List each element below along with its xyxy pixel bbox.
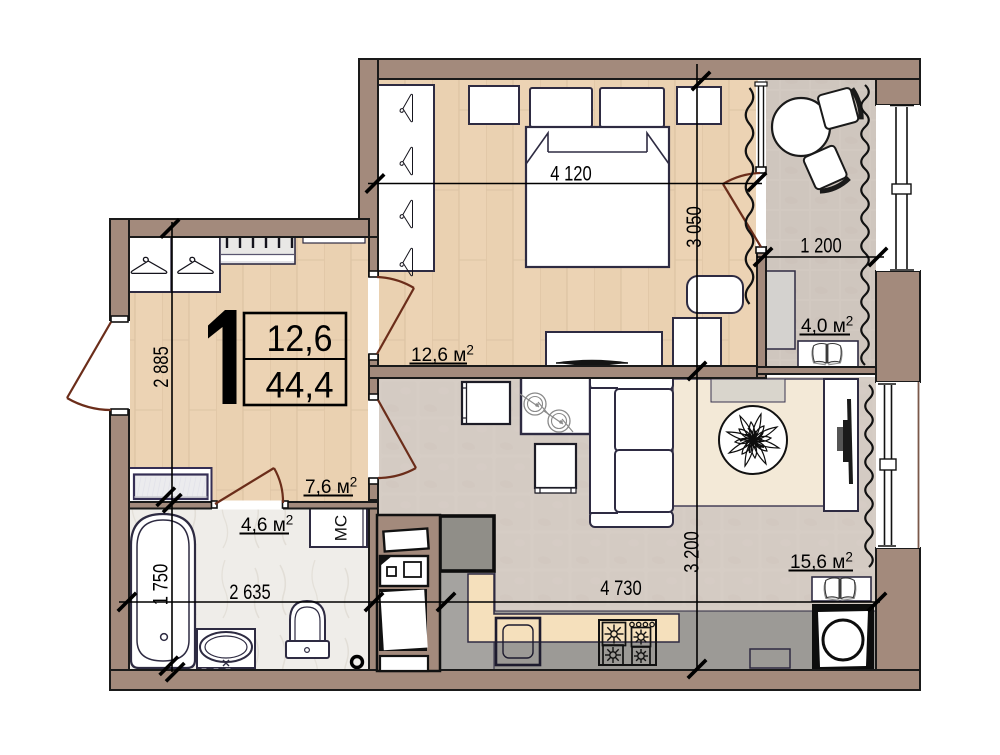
svg-text:7,6 м2: 7,6 м2 [305,475,357,499]
svg-text:МС: МС [332,515,351,541]
svg-text:4 120: 4 120 [550,163,592,186]
svg-text:15,6 м2: 15,6 м2 [790,550,853,574]
svg-text:2 635: 2 635 [229,581,271,604]
svg-text:1 200: 1 200 [800,235,842,258]
svg-text:12,6 м2: 12,6 м2 [411,343,474,367]
svg-text:2 885: 2 885 [150,346,173,388]
svg-text:4,6 м2: 4,6 м2 [241,513,293,537]
svg-text:1 750: 1 750 [150,564,173,606]
svg-text:3 200: 3 200 [681,531,704,573]
svg-text:3 050: 3 050 [683,206,706,248]
svg-text:4,0 м2: 4,0 м2 [801,314,853,338]
svg-text:4 730: 4 730 [600,577,642,600]
svg-text:44,4: 44,4 [266,365,334,406]
svg-text:12,6: 12,6 [267,318,333,359]
